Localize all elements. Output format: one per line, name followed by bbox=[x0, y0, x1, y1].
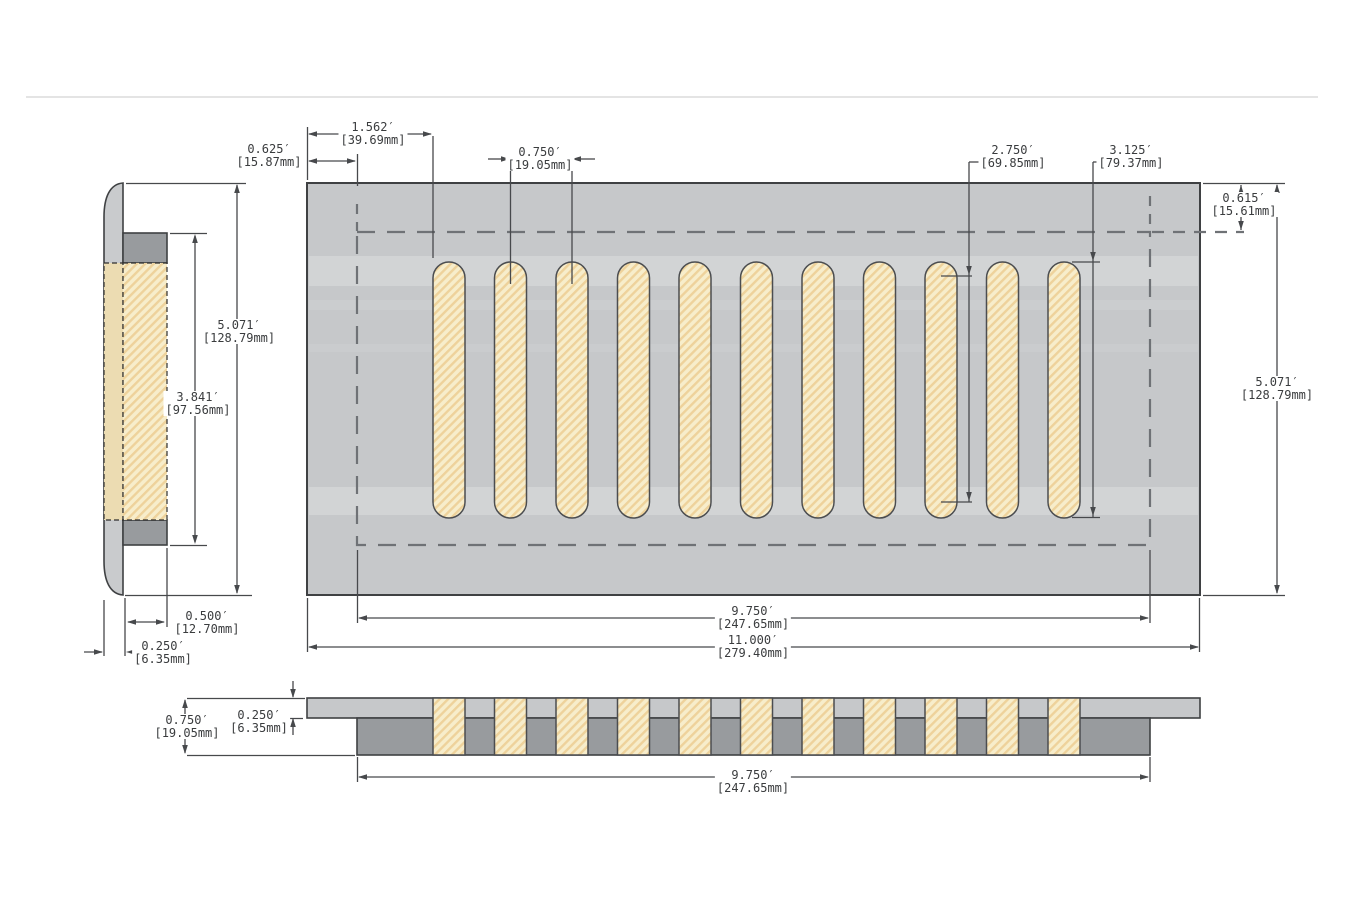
dim-border-top: 0.615′[15.61mm] bbox=[1209, 192, 1278, 217]
dim-face-thickness: 0.250′[6.35mm] bbox=[132, 640, 194, 665]
vent-slot bbox=[433, 698, 465, 755]
vent-slot bbox=[495, 698, 527, 755]
vent-slot bbox=[864, 698, 896, 755]
side-view bbox=[104, 183, 167, 595]
vent-slot bbox=[741, 262, 773, 518]
dim-slot-offset: 1.562′[39.69mm] bbox=[338, 121, 407, 146]
vent-slot bbox=[802, 262, 834, 518]
vent-slot bbox=[802, 698, 834, 755]
drawing-canvas: 1.562′[39.69mm] 0.625′[15.87mm] 0.750′[1… bbox=[0, 0, 1350, 900]
vent-slot bbox=[679, 698, 711, 755]
vent-slot bbox=[741, 698, 773, 755]
vent-slot bbox=[556, 698, 588, 755]
dim-opening-height: 3.841′[97.56mm] bbox=[163, 391, 232, 416]
side-frame-bottom bbox=[123, 520, 167, 545]
vent-slot bbox=[433, 262, 465, 518]
dim-overall-height-side: 5.071′[128.79mm] bbox=[201, 319, 277, 344]
vent-slot bbox=[556, 262, 588, 518]
dim-margin-left: 0.625′[15.87mm] bbox=[234, 143, 303, 168]
dim-overall-width: 11.000′[279.40mm] bbox=[715, 634, 791, 659]
vent-slot bbox=[618, 698, 650, 755]
dim-slot-height: 3.125′[79.37mm] bbox=[1096, 144, 1165, 169]
vent-slot bbox=[1048, 262, 1080, 518]
dim-slot-inner-height: 2.750′[69.85mm] bbox=[978, 144, 1047, 169]
dim-frame-depth: 0.500′[12.70mm] bbox=[172, 610, 241, 635]
dim-opening-width: 9.750′[247.65mm] bbox=[715, 605, 791, 630]
vent-slot bbox=[618, 262, 650, 518]
vent-slot bbox=[864, 262, 896, 518]
dim-overall-height: 5.071′[128.79mm] bbox=[1239, 376, 1315, 401]
vent-drawing-svg bbox=[0, 0, 1350, 900]
dim-section-opening-width: 9.750′[247.65mm] bbox=[715, 769, 791, 794]
vent-slot bbox=[925, 262, 957, 518]
front-view bbox=[307, 183, 1244, 595]
dim-slot-pitch: 0.750′[19.05mm] bbox=[505, 146, 574, 171]
section-view bbox=[307, 698, 1200, 755]
vent-slot bbox=[987, 698, 1019, 755]
vent-slot bbox=[495, 262, 527, 518]
side-frame-top bbox=[123, 233, 167, 263]
dim-section-depth: 0.750′[19.05mm] bbox=[152, 714, 221, 739]
vent-slot bbox=[987, 262, 1019, 518]
dim-plate-thickness: 0.250′[6.35mm] bbox=[228, 709, 290, 734]
side-slot-hidden bbox=[123, 263, 167, 520]
vent-slot bbox=[679, 262, 711, 518]
vent-slot bbox=[925, 698, 957, 755]
side-slot-face-hidden bbox=[104, 263, 123, 520]
vent-slot bbox=[1048, 698, 1080, 755]
